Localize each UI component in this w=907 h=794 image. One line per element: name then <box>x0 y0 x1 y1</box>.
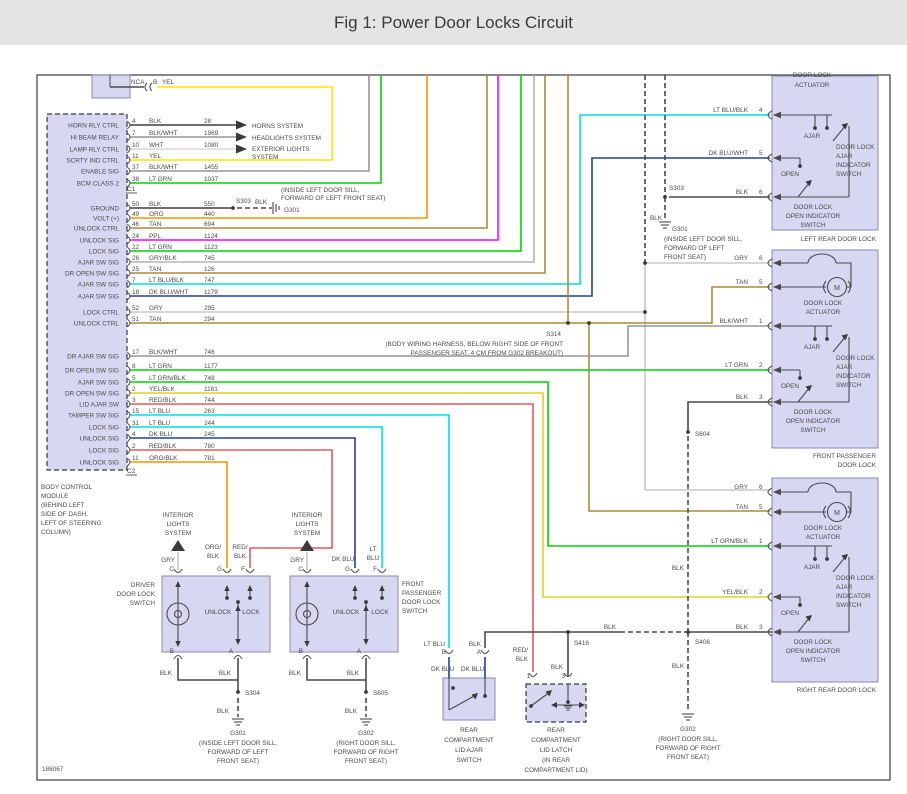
bcm-pin-number: 2 <box>132 386 136 393</box>
junction-dot <box>825 557 829 561</box>
wire <box>130 382 770 546</box>
diagram-label: BLK <box>736 394 749 401</box>
diagram-label: SYSTEM <box>165 530 191 537</box>
bcm-pin-number: 3 <box>132 397 136 404</box>
diagram-label: DOOR LOCK <box>838 462 877 469</box>
bcm-pin-label: HI BEAM RELAY <box>70 135 119 142</box>
diagram-label: FORWARD OF LEFT <box>664 245 725 252</box>
diagram-label: S406 <box>695 639 710 646</box>
diagram-label: LID LATCH <box>540 747 573 754</box>
bcm-name: COLUMN) <box>41 529 71 536</box>
diagram-label: LIGHTS <box>295 521 318 528</box>
bcm-wire-color: DK BLU <box>149 431 172 438</box>
diagram-label: INDICATOR <box>836 593 871 600</box>
bcm-circuit-number: 745 <box>204 255 215 262</box>
diagram-label: (BODY WIRING HARNESS, BELOW RIGHT SIDE O… <box>385 341 563 348</box>
diagram-label: AJAR <box>804 344 821 351</box>
diagram-label: DOOR LOCK <box>804 300 843 307</box>
diagram-label: C <box>298 566 303 573</box>
junction-dot <box>663 195 667 199</box>
diagram-label: 1 <box>526 673 530 680</box>
bcm-pin-label: ENABLE SIG <box>81 169 119 176</box>
wire <box>130 75 545 273</box>
diagram-label: LT <box>370 546 377 553</box>
junction-dot <box>236 690 240 694</box>
bcm-wire-color: WHT <box>149 142 164 149</box>
pin-connector <box>223 569 231 573</box>
junction-dot <box>643 261 647 265</box>
diagram-label: TAN <box>736 279 749 286</box>
bcm-pin-label: UNLOCK SIG <box>80 238 119 245</box>
bcm-pin-number: 18 <box>132 289 140 296</box>
diagram-label: G301 <box>230 730 246 737</box>
bcm-pin-label: LOCK SIG <box>89 249 119 256</box>
diagram-label: OPEN <box>781 383 799 390</box>
diagram-label: BLK <box>217 708 230 715</box>
diagram-label: M <box>834 510 840 517</box>
bcm-circuit-number: 1037 <box>204 176 219 183</box>
diagram-label: DK BLU/WHT <box>709 150 749 157</box>
diagram-label: GRY <box>734 484 748 491</box>
diagram-label: BLK <box>551 664 564 671</box>
junction-dot <box>225 596 229 600</box>
bcm-pin-number: 11 <box>132 455 139 462</box>
diagram-label: SYSTEM <box>252 154 278 161</box>
bcm-circuit-number: 1080 <box>204 142 219 149</box>
diagram-label: INDICATOR <box>836 373 871 380</box>
bcm-connector-id: C1 <box>127 186 136 193</box>
junction-dot <box>813 557 817 561</box>
bcm-pin-label: DR OPEN SW SIG <box>65 391 119 398</box>
bcm-pin-label: BCM CLASS 2 <box>77 181 120 188</box>
diagram-label: TAN <box>736 504 749 511</box>
bcm-wire-color: RED/BLK <box>149 397 177 404</box>
pin-connector <box>246 569 254 573</box>
diagram-label: (IN REAR <box>542 757 570 764</box>
bcm-pin-number: 11 <box>132 153 139 160</box>
diagram-label: BLK <box>345 708 358 715</box>
diagram-label: BLK <box>672 565 685 572</box>
bcm-circuit-number: 1179 <box>204 289 218 296</box>
junction-dot <box>566 630 570 634</box>
diagram-label: FORWARD OF LEFT <box>208 749 269 756</box>
diagram-label: RED/ <box>232 544 247 551</box>
junction-dot <box>483 694 487 698</box>
diagram-label: DK BLU <box>331 556 354 563</box>
diagram-label: BLK <box>255 199 268 206</box>
junction-dot <box>825 126 829 130</box>
bcm-pin-label: AJAR SW SIG <box>78 260 119 267</box>
actuator-pin-connector <box>768 508 772 516</box>
diagram-label: BLK <box>160 670 173 677</box>
bcm-wire-color: TAN <box>149 316 162 323</box>
diagram-label: (INSIDE LEFT DOOR SILL, <box>281 187 360 194</box>
diagram-label: ORG/ <box>205 544 222 551</box>
diagram-label: COMPARTMENT <box>444 737 494 744</box>
diagram-label: DK BLU <box>461 666 484 673</box>
wire <box>589 323 770 511</box>
junction-dot <box>529 704 533 708</box>
diagram-label: DRIVER <box>131 582 156 589</box>
diagram-label: BLU <box>367 555 380 562</box>
diagram-label: LOCK <box>242 609 260 616</box>
diagram-label: S314 <box>546 331 561 338</box>
diagram-label: GRY <box>290 557 304 564</box>
diagram-label: FRONT PASSENGER <box>813 453 876 460</box>
junction-dot <box>686 430 690 434</box>
diagram-label: G301 <box>672 226 688 233</box>
diagram-label: COMPARTMENT <box>531 737 581 744</box>
bcm-circuit-number: 244 <box>204 420 215 427</box>
bcm-circuit-number: 295 <box>204 305 215 312</box>
diagram-label: A <box>477 649 482 656</box>
bcm-pin-number: 46 <box>132 221 140 228</box>
diagram-label: DOOR LOCK <box>794 409 833 416</box>
bcm-pin-number: 10 <box>132 142 140 149</box>
arrowhead <box>171 540 185 551</box>
diagram-label: RIGHT REAR DOOR LOCK <box>797 687 877 694</box>
diagram-label: OPEN INDICATOR <box>786 648 841 655</box>
diagram-label: BLK <box>650 215 663 222</box>
bcm-circuit-number: 1969 <box>204 130 219 137</box>
bcm-circuit-number: 780 <box>204 443 215 450</box>
diagram-label: C <box>169 566 174 573</box>
diagram-label: ACTUATOR <box>795 82 830 89</box>
bcm-wire-color: PPL <box>149 233 162 240</box>
bcm-wire-color: LT GRN/BLK <box>149 375 186 382</box>
diagram-label: SWITCH <box>836 602 862 609</box>
wire <box>130 75 521 251</box>
diagram-label: FRONT SEAT) <box>664 254 706 261</box>
bcm-pin-label: AJAR SW SIG <box>78 282 119 289</box>
diagram-label: DOOR LOCK <box>793 72 832 79</box>
diagram-label: G302 <box>680 726 696 733</box>
junction-dot <box>686 630 690 634</box>
diagram-label: LT BLU/BLK <box>713 107 749 114</box>
diagram-label: S604 <box>695 431 710 438</box>
bcm-wire-color: LT BLU/BLK <box>149 277 185 284</box>
bcm-circuit-number: 744 <box>204 397 215 404</box>
diagram-label: BLK <box>604 624 617 631</box>
bcm-wire-color: YEL <box>149 153 162 160</box>
junction-dot <box>587 321 591 325</box>
bcm-pin-label: DR OPEN SW SIG <box>65 368 119 375</box>
diagram-label: AJAR <box>836 364 853 371</box>
figure-title: Fig 1: Power Door Locks Circuit <box>334 13 573 33</box>
diagram-label: B <box>442 649 446 656</box>
figure-title-banner: Fig 1: Power Door Locks Circuit <box>0 0 907 45</box>
diagram-label: DOOR LOCK <box>794 204 833 211</box>
bcm-pin-label: TAMPER SW SIG <box>68 413 119 420</box>
diagram-label: (RIGHT DOOR SILL, <box>336 740 396 747</box>
bcm-wire-color: LT GRN <box>149 244 172 251</box>
bcm-wire-color: BLK/WHT <box>149 164 178 171</box>
bcm-wire-color: ORG/BLK <box>149 455 178 462</box>
bcm-wire-color: BLK/WHT <box>149 349 178 356</box>
diagram-label: G <box>217 566 222 573</box>
bcm-wire-color: BLK <box>149 118 162 125</box>
bcm-pin-number: 2 <box>132 443 136 450</box>
bcm-pin-number: 5 <box>132 375 136 382</box>
bcm-pin-label: DR OPEN SW SIG <box>65 271 119 278</box>
bcm-pin-label: VOLT (+) <box>93 216 119 223</box>
bcm-pin-label: SCRTY IND CTRL <box>66 158 119 165</box>
diagram-label: 6 <box>759 255 763 262</box>
diagram-label: SWITCH <box>836 382 862 389</box>
diagram-label: OPEN <box>781 610 799 617</box>
bcm-circuit-number: 263 <box>204 408 215 415</box>
bcm-name: BODY CONTROL <box>41 484 92 491</box>
diagram-label: PASSENGER SEAT, 4 CM FROM G302 BREAKOUT) <box>411 350 563 357</box>
junction-dot <box>353 596 357 600</box>
wire <box>130 287 770 323</box>
bcm-circuit-number: 1455 <box>204 164 219 171</box>
bcm-pin-label: HORN RLY CTRL <box>68 123 119 130</box>
diagram-label: ACTUATOR <box>806 534 841 541</box>
diagram-label: 1 <box>759 538 763 545</box>
bcm-circuit-number: 781 <box>204 455 215 462</box>
diagram-label: GRY <box>734 255 748 262</box>
bcm-pin-number: 31 <box>132 420 140 427</box>
diagram-label: UNLOCK <box>205 609 232 616</box>
bcm-name: MODULE <box>41 493 68 500</box>
diagram-label: (RIGHT DOOR SILL, <box>658 736 718 743</box>
bcm-pin-number: 37 <box>132 164 140 171</box>
bcm-pin-label: DR AJAR SW SIG <box>67 354 119 361</box>
diagram-label: OPEN INDICATOR <box>786 213 841 220</box>
arrowhead <box>236 121 247 130</box>
wire <box>130 75 369 171</box>
diagram-label: FORWARD OF LEFT FRONT SEAT) <box>281 195 385 202</box>
diagram-label: 2 <box>759 589 763 596</box>
bcm-wire-color: GRY <box>149 305 163 312</box>
arrowhead <box>236 145 247 154</box>
bcm-wire-color: GRY/BLK <box>149 255 177 262</box>
arrowhead <box>236 133 247 142</box>
bcm-name: LEFT OF STEERING <box>41 520 102 527</box>
bcm-pin-label: AJAR SW SIG <box>78 294 119 301</box>
diagram-label: LID AJAR <box>455 747 483 754</box>
diagram-label: OPEN INDICATOR <box>786 418 841 425</box>
pin-connector <box>378 569 386 573</box>
bcm-pin-label: LOCK SIG <box>89 425 119 432</box>
bcm-wire-color: BLK <box>149 201 162 208</box>
diagram-label: ACTUATOR <box>806 309 841 316</box>
bcm-pin-number: 24 <box>132 233 140 240</box>
junction-dot <box>798 164 802 168</box>
bcm-circuit-number: 440 <box>204 211 215 218</box>
diagram-label: BLK <box>736 624 749 631</box>
junction-dot <box>364 690 368 694</box>
diagram-label: SWITCH <box>130 600 156 607</box>
diagram-label: 2 <box>759 362 763 369</box>
bcm-pin-number: 26 <box>132 255 140 262</box>
diagram-label: SWITCH <box>800 657 826 664</box>
diagram-label: S303 <box>669 185 684 192</box>
diagram-label: SWITCH <box>836 171 862 178</box>
diagram-label: DOOR LOCK <box>836 144 875 151</box>
diagram-label: S303 <box>236 198 251 205</box>
junction-dot <box>451 686 455 690</box>
diagram-label: A <box>229 648 234 655</box>
bcm-wire-color: TAN <box>149 221 162 228</box>
bcm-circuit-number: 747 <box>204 277 215 284</box>
diagram-label: (INSIDE LEFT DOOR SILL, <box>664 236 743 243</box>
diagram-label: DOOR LOCK <box>836 575 875 582</box>
bcm-wire-color: DK BLU/WHT <box>149 289 189 296</box>
bcm-wire-color: TAN <box>149 266 162 273</box>
diagram-label: RED/ <box>513 647 528 654</box>
diagram-label: 4 <box>759 107 763 114</box>
junction-dot <box>380 596 384 600</box>
diagram-label: LIGHTS <box>166 521 189 528</box>
diagram-label: A <box>357 648 362 655</box>
diagram-label: 1 <box>759 318 763 325</box>
diagram-label: FRONT SEAT) <box>345 758 387 765</box>
diagram-label: SYSTEM <box>294 530 320 537</box>
bcm-pin-label: AJAR SW SIG <box>78 380 119 387</box>
diagram-label: DOOR LOCK <box>836 355 875 362</box>
diagram-label: LOCK <box>371 609 389 616</box>
diagram-label: G <box>345 566 350 573</box>
bcm-pin-number: 8 <box>132 363 136 370</box>
diagram-label: M <box>834 285 840 292</box>
bcm-pin-number: 25 <box>132 266 140 273</box>
arrowhead <box>300 540 314 551</box>
diagram-label: FORWARD OF RIGHT <box>334 749 399 756</box>
diagram-label: 5 <box>759 504 763 511</box>
diagram-label: BLK <box>736 189 749 196</box>
diagram-label: LEFT REAR DOOR LOCK <box>801 236 877 243</box>
symbol-path <box>150 83 152 91</box>
diagram-label: BLK <box>234 553 247 560</box>
diagram-label: BLK <box>219 670 232 677</box>
diagram-label: SWITCH <box>800 427 826 434</box>
diagram-label: NCA <box>131 79 145 86</box>
diagram-label: EXTERIOR LIGHTS <box>252 146 310 153</box>
junction-dot <box>248 596 252 600</box>
bcm-pin-label: LID AJAR SW <box>79 402 120 409</box>
diagram-label: BLK <box>469 641 482 648</box>
diagram-label: 3 <box>759 394 763 401</box>
junction-dot <box>566 321 570 325</box>
bcm-pin-label: LAMP RLY CTRL <box>70 147 120 154</box>
bcm-pin-number: 4 <box>132 118 136 125</box>
diagram-label: S416 <box>574 640 589 647</box>
bcm-pin-number: 7 <box>132 277 136 284</box>
bcm-pin-label: GROUND <box>91 206 120 213</box>
diagram-label: AJAR <box>804 564 821 571</box>
diagram-label: B <box>170 648 174 655</box>
bcm-wire-color: LT GRN <box>149 363 172 370</box>
diagram-label: AJAR <box>836 584 853 591</box>
diagram-label: F <box>373 566 377 573</box>
diagram-label: 186067 <box>42 766 64 773</box>
bcm-pin-number: 7 <box>132 130 136 137</box>
diagram-label: HEADLIGHTS SYSTEM <box>252 135 321 142</box>
bcm-pin-label: LOCK CTRL <box>83 310 119 317</box>
diagram-label: S605 <box>373 690 388 697</box>
bcm-pin-number: 49 <box>132 211 140 218</box>
junction-dot <box>798 603 802 607</box>
bcm-wire-color: LT BLU <box>149 408 170 415</box>
diagram-label: LT GRN <box>725 362 748 369</box>
bcm-wire-color: LT GRN <box>149 176 172 183</box>
bcm-circuit-number: 245 <box>204 431 215 438</box>
junction-dot <box>825 337 829 341</box>
wire <box>130 75 498 240</box>
pin-connector <box>481 650 489 654</box>
bcm-connector-id: C2 <box>127 468 136 475</box>
diagram-label: UNLOCK <box>333 609 360 616</box>
junction-dot <box>643 310 647 314</box>
bcm-pin-number: 4 <box>132 431 136 438</box>
diagram-label: FORWARD OF RIGHT <box>656 745 721 752</box>
bcm-circuit-number: 694 <box>204 221 215 228</box>
diagram-label: LT BLU <box>424 641 445 648</box>
diagram-label: SWITCH <box>800 222 826 229</box>
bcm-pin-label: UNLOCK CTRL <box>74 321 120 328</box>
bcm-name: (BEHIND LEFT <box>41 502 85 509</box>
bcm-pin-label: UNLOCK SIG <box>80 436 119 443</box>
diagram-label: G301 <box>284 207 300 214</box>
bcm-circuit-number: 746 <box>204 349 215 356</box>
diagram-label: B <box>153 79 157 86</box>
diagram-label: FRONT <box>402 581 424 588</box>
bcm-wire-color: BLK/WHT <box>149 130 178 137</box>
diagram-label: DK BLU <box>431 666 454 673</box>
diagram-label: FRONT SEAT) <box>667 754 709 761</box>
bcm-pin-label: UNLOCK CTRL <box>74 226 120 233</box>
wiring-diagram-canvas: HORN RLY CTRL4BLK28HI BEAM RELAY7BLK/WHT… <box>0 45 907 794</box>
junction-dot <box>364 600 368 604</box>
diagram-label: LT GRN/BLK <box>711 538 748 545</box>
diagram-label: B <box>299 648 303 655</box>
junction-dot <box>231 206 235 210</box>
bcm-pin-number: 51 <box>132 316 140 323</box>
diagram-label: INTERIOR <box>163 512 194 519</box>
diagram-label: BLK/WHT <box>720 318 749 325</box>
junction-dot <box>813 126 817 130</box>
diagram-label: HORNS SYSTEM <box>252 123 303 130</box>
bcm-pin-label: UNLOCK SIG <box>80 460 119 467</box>
bcm-pin-number: 38 <box>132 176 140 183</box>
bcm-wire-color: LT BLU <box>149 420 170 427</box>
diagram-label: AJAR <box>836 153 853 160</box>
bcm-circuit-number: 1181 <box>204 386 218 393</box>
diagram-label: 6 <box>759 484 763 491</box>
diagram-label: (INSIDE LEFT DOOR SILL, <box>199 740 278 747</box>
diagram-label: YEL/BLK <box>722 589 749 596</box>
bcm-circuit-number: 748 <box>204 375 215 382</box>
diagram-label: BLK <box>207 553 220 560</box>
diagram-label: PASSENGER <box>402 590 442 597</box>
diagram-label: REAR <box>547 727 565 734</box>
bcm-circuit-number: 28 <box>204 118 212 125</box>
diagram-label: FRONT SEAT) <box>217 758 259 765</box>
bcm-pin-number: 50 <box>132 201 140 208</box>
diagram-label: 3 <box>759 624 763 631</box>
diagram-label: INDICATOR <box>836 162 871 169</box>
pin-connector <box>529 673 537 677</box>
diagram-label: BLK <box>289 670 302 677</box>
junction-dot <box>566 700 570 704</box>
wire <box>485 632 620 648</box>
bcm-circuit-number: 126 <box>204 266 215 273</box>
junction-dot <box>813 337 817 341</box>
diagram-label: SWITCH <box>402 608 428 615</box>
diagram-label: DOOR LOCK <box>117 591 156 598</box>
